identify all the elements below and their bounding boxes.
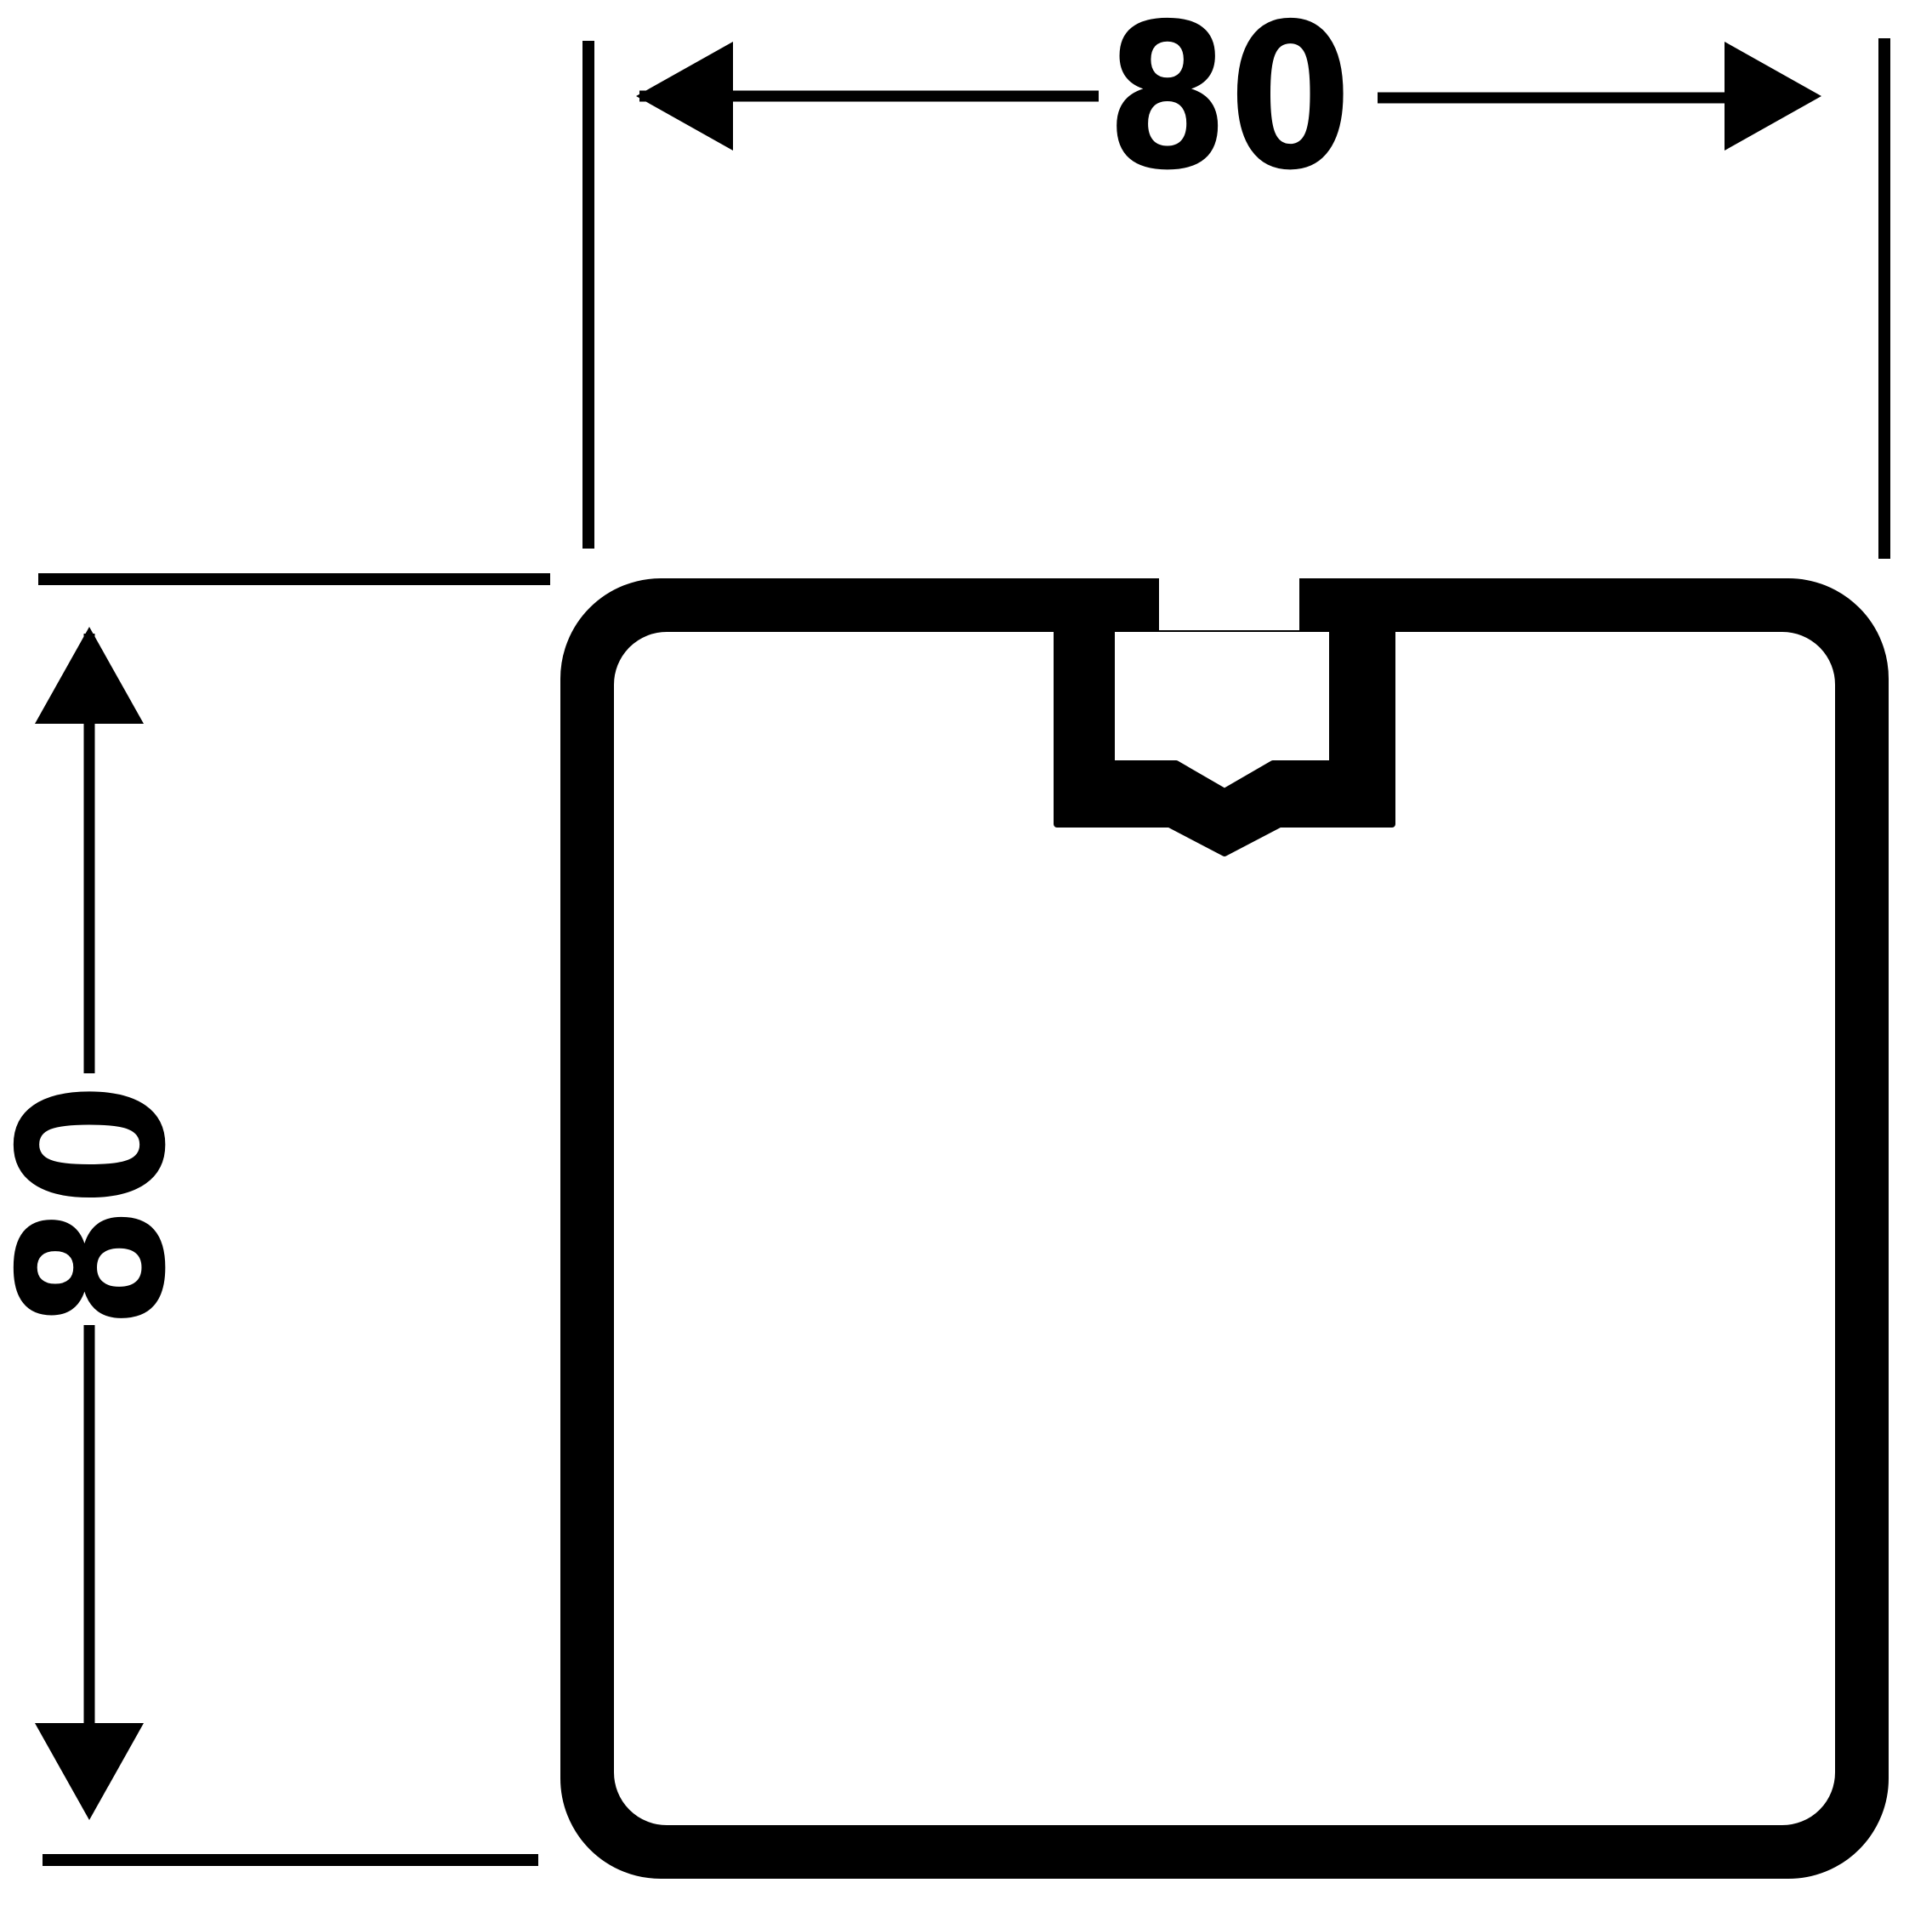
height-dim-label: 80 <box>0 1084 210 1329</box>
height-dimension: 80 <box>0 579 550 1860</box>
profile-wall-ring <box>563 581 1886 1876</box>
height-dim-arrowhead-up <box>35 627 144 724</box>
scanned-drawing-page: 80 80 <box>0 0 1932 1917</box>
profile-cross-section-drawing: 80 80 <box>0 0 1932 1917</box>
width-dim-label: 80 <box>1106 0 1352 214</box>
width-dim-arrowhead-left <box>636 42 733 151</box>
slot-mouth-opening <box>1159 560 1299 630</box>
width-dimension: 80 <box>588 0 1884 559</box>
width-dim-arrowhead-right <box>1725 42 1821 151</box>
height-dim-arrowhead-down <box>35 1723 144 1820</box>
t-slot-channel <box>1057 628 1392 853</box>
